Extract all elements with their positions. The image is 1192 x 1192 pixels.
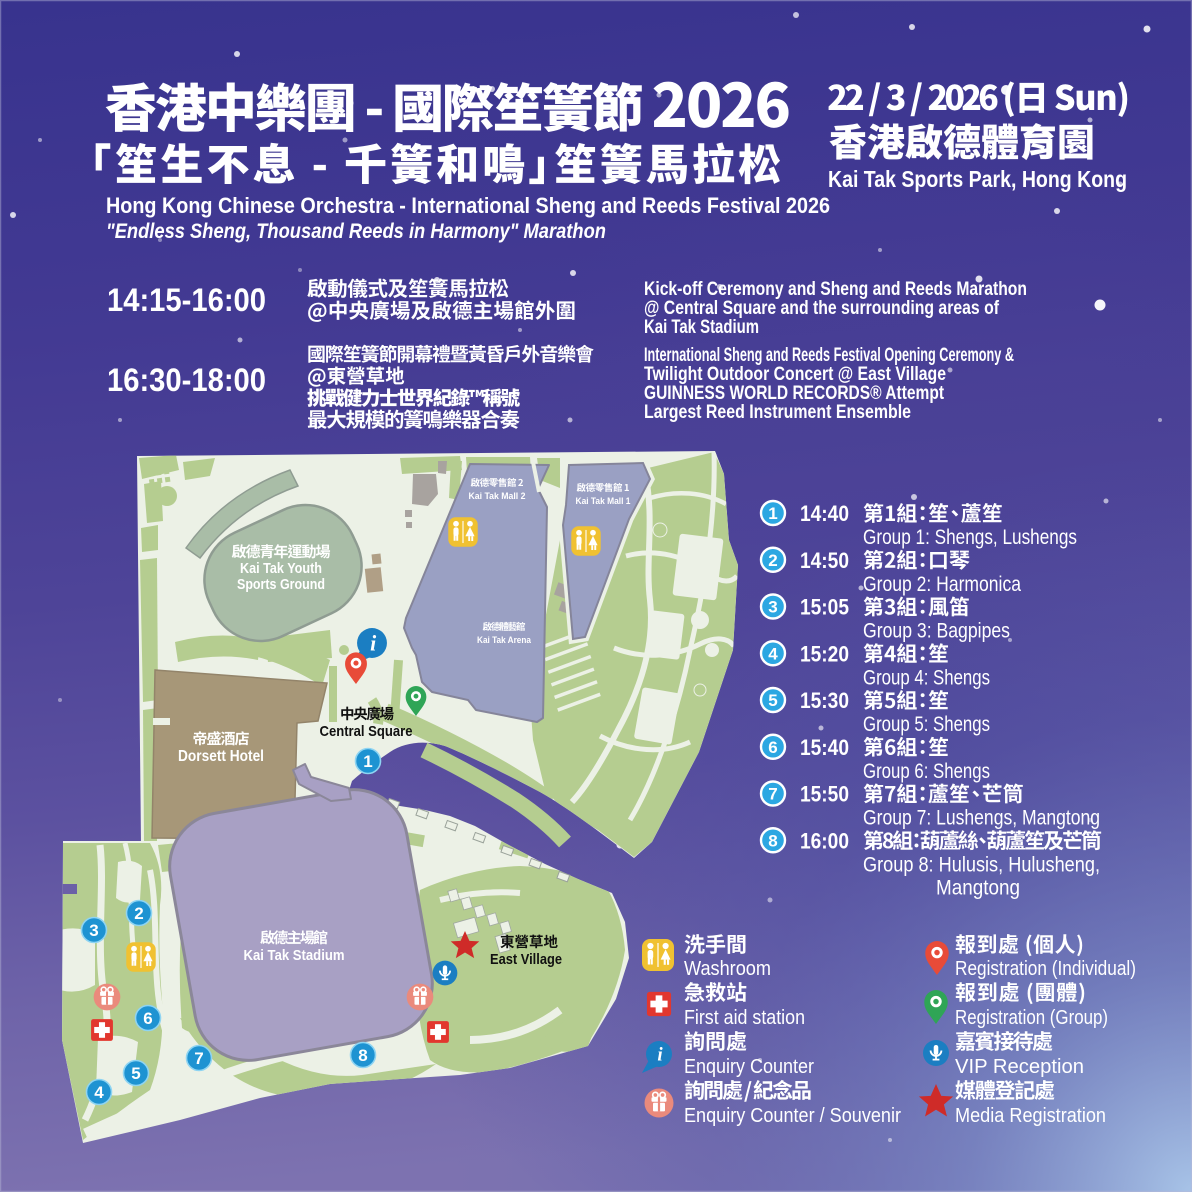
svg-text:Group 2: Harmonica: Group 2: Harmonica	[863, 573, 1021, 596]
svg-text:2: 2	[768, 551, 777, 570]
svg-text:Kai Tak Mall 2: Kai Tak Mall 2	[469, 491, 526, 502]
svg-text:Kai Tak Stadium: Kai Tak Stadium	[244, 947, 345, 964]
svg-text:Group 8: Hulusis, Hulusheng,: Group 8: Hulusis, Hulusheng,	[863, 853, 1100, 876]
svg-text:Kai Tak Mall 1: Kai Tak Mall 1	[576, 496, 632, 507]
svg-text:2: 2	[134, 904, 143, 923]
svg-text:15:40: 15:40	[800, 735, 849, 760]
svg-text:Group 3: Bagpipes: Group 3: Bagpipes	[863, 620, 1010, 643]
svg-text:Hong Kong Chinese Orchestra -: Hong Kong Chinese Orchestra - Internatio…	[106, 193, 830, 218]
svg-text:16:30-18:00: 16:30-18:00	[107, 362, 266, 398]
svg-text:8: 8	[768, 831, 777, 850]
svg-text:Registration (Group): Registration (Group)	[955, 1007, 1108, 1029]
svg-text:3: 3	[768, 598, 777, 617]
svg-text:Washroom: Washroom	[684, 958, 771, 980]
svg-text:@ Central Square and the surro: @ Central Square and the surrounding are…	[644, 298, 1000, 319]
svg-text:14:40: 14:40	[800, 501, 849, 526]
svg-text:15:05: 15:05	[800, 595, 849, 620]
svg-text:Enquiry Counter: Enquiry Counter	[684, 1056, 814, 1078]
svg-text:GUINNESS WORLD RECORDS® Attemp: GUINNESS WORLD RECORDS® Attempt	[644, 383, 945, 404]
svg-text:Twilight Outdoor Concert @ Eas: Twilight Outdoor Concert @ East Village	[644, 364, 946, 385]
svg-text:Group 1: Shengs, Lushengs: Group 1: Shengs, Lushengs	[863, 526, 1077, 549]
svg-text:5: 5	[131, 1064, 140, 1083]
svg-text:Kai Tak Arena: Kai Tak Arena	[477, 635, 532, 646]
svg-text:4: 4	[94, 1083, 104, 1102]
svg-text:1: 1	[768, 504, 777, 523]
svg-text:International Sheng and Reeds: International Sheng and Reeds Festival O…	[644, 345, 1014, 366]
svg-text:15:30: 15:30	[800, 688, 849, 713]
svg-text:East Village: East Village	[490, 952, 562, 968]
svg-text:Group 4: Shengs: Group 4: Shengs	[863, 666, 990, 689]
svg-text:Kai Tak Sports Park, Hong Kong: Kai Tak Sports Park, Hong Kong	[828, 166, 1127, 192]
svg-text:16:00: 16:00	[800, 828, 849, 853]
svg-text:Largest Reed Instrument Ensemb: Largest Reed Instrument Ensemble	[644, 402, 911, 423]
svg-text:3: 3	[89, 921, 98, 940]
svg-text:4: 4	[768, 644, 778, 663]
svg-text:Enquiry Counter / Souvenir: Enquiry Counter / Souvenir	[684, 1105, 901, 1127]
svg-text:5: 5	[768, 691, 777, 710]
svg-text:7: 7	[194, 1049, 203, 1068]
svg-text:Kick-off Ceremony and Sheng an: Kick-off Ceremony and Sheng and Reeds Ma…	[644, 279, 1027, 300]
svg-text:Registration (Individual): Registration (Individual)	[955, 958, 1136, 980]
svg-text:Group 7: Lushengs, Mangtong: Group 7: Lushengs, Mangtong	[863, 807, 1100, 830]
svg-text:Kai Tak Youth: Kai Tak Youth	[240, 561, 322, 577]
svg-text:Mangtong: Mangtong	[936, 876, 1020, 899]
svg-text:14:50: 14:50	[800, 548, 849, 573]
svg-text:Media Registration: Media Registration	[955, 1105, 1106, 1127]
svg-text:Dorsett Hotel: Dorsett Hotel	[178, 748, 264, 765]
svg-text:15:20: 15:20	[800, 641, 849, 666]
svg-text:8: 8	[358, 1046, 367, 1065]
svg-text:Central Square: Central Square	[320, 723, 413, 740]
svg-text:Group 5: Shengs: Group 5: Shengs	[863, 713, 990, 736]
svg-text:14:15-16:00: 14:15-16:00	[107, 282, 266, 318]
svg-text:7: 7	[768, 785, 777, 804]
svg-text:6: 6	[143, 1009, 152, 1028]
svg-text:Group 6: Shengs: Group 6: Shengs	[863, 760, 990, 783]
svg-text:6: 6	[768, 738, 777, 757]
svg-text:1: 1	[363, 752, 372, 771]
svg-text:Sports Ground: Sports Ground	[237, 577, 325, 593]
svg-text:15:50: 15:50	[800, 782, 849, 807]
svg-text:VIP Reception: VIP Reception	[955, 1056, 1084, 1078]
svg-text:"Endless Sheng, Thousand Reeds: "Endless Sheng, Thousand Reeds in Harmon…	[106, 219, 606, 243]
svg-text:Kai Tak Stadium: Kai Tak Stadium	[644, 317, 759, 338]
svg-text:First aid station: First aid station	[684, 1007, 805, 1029]
